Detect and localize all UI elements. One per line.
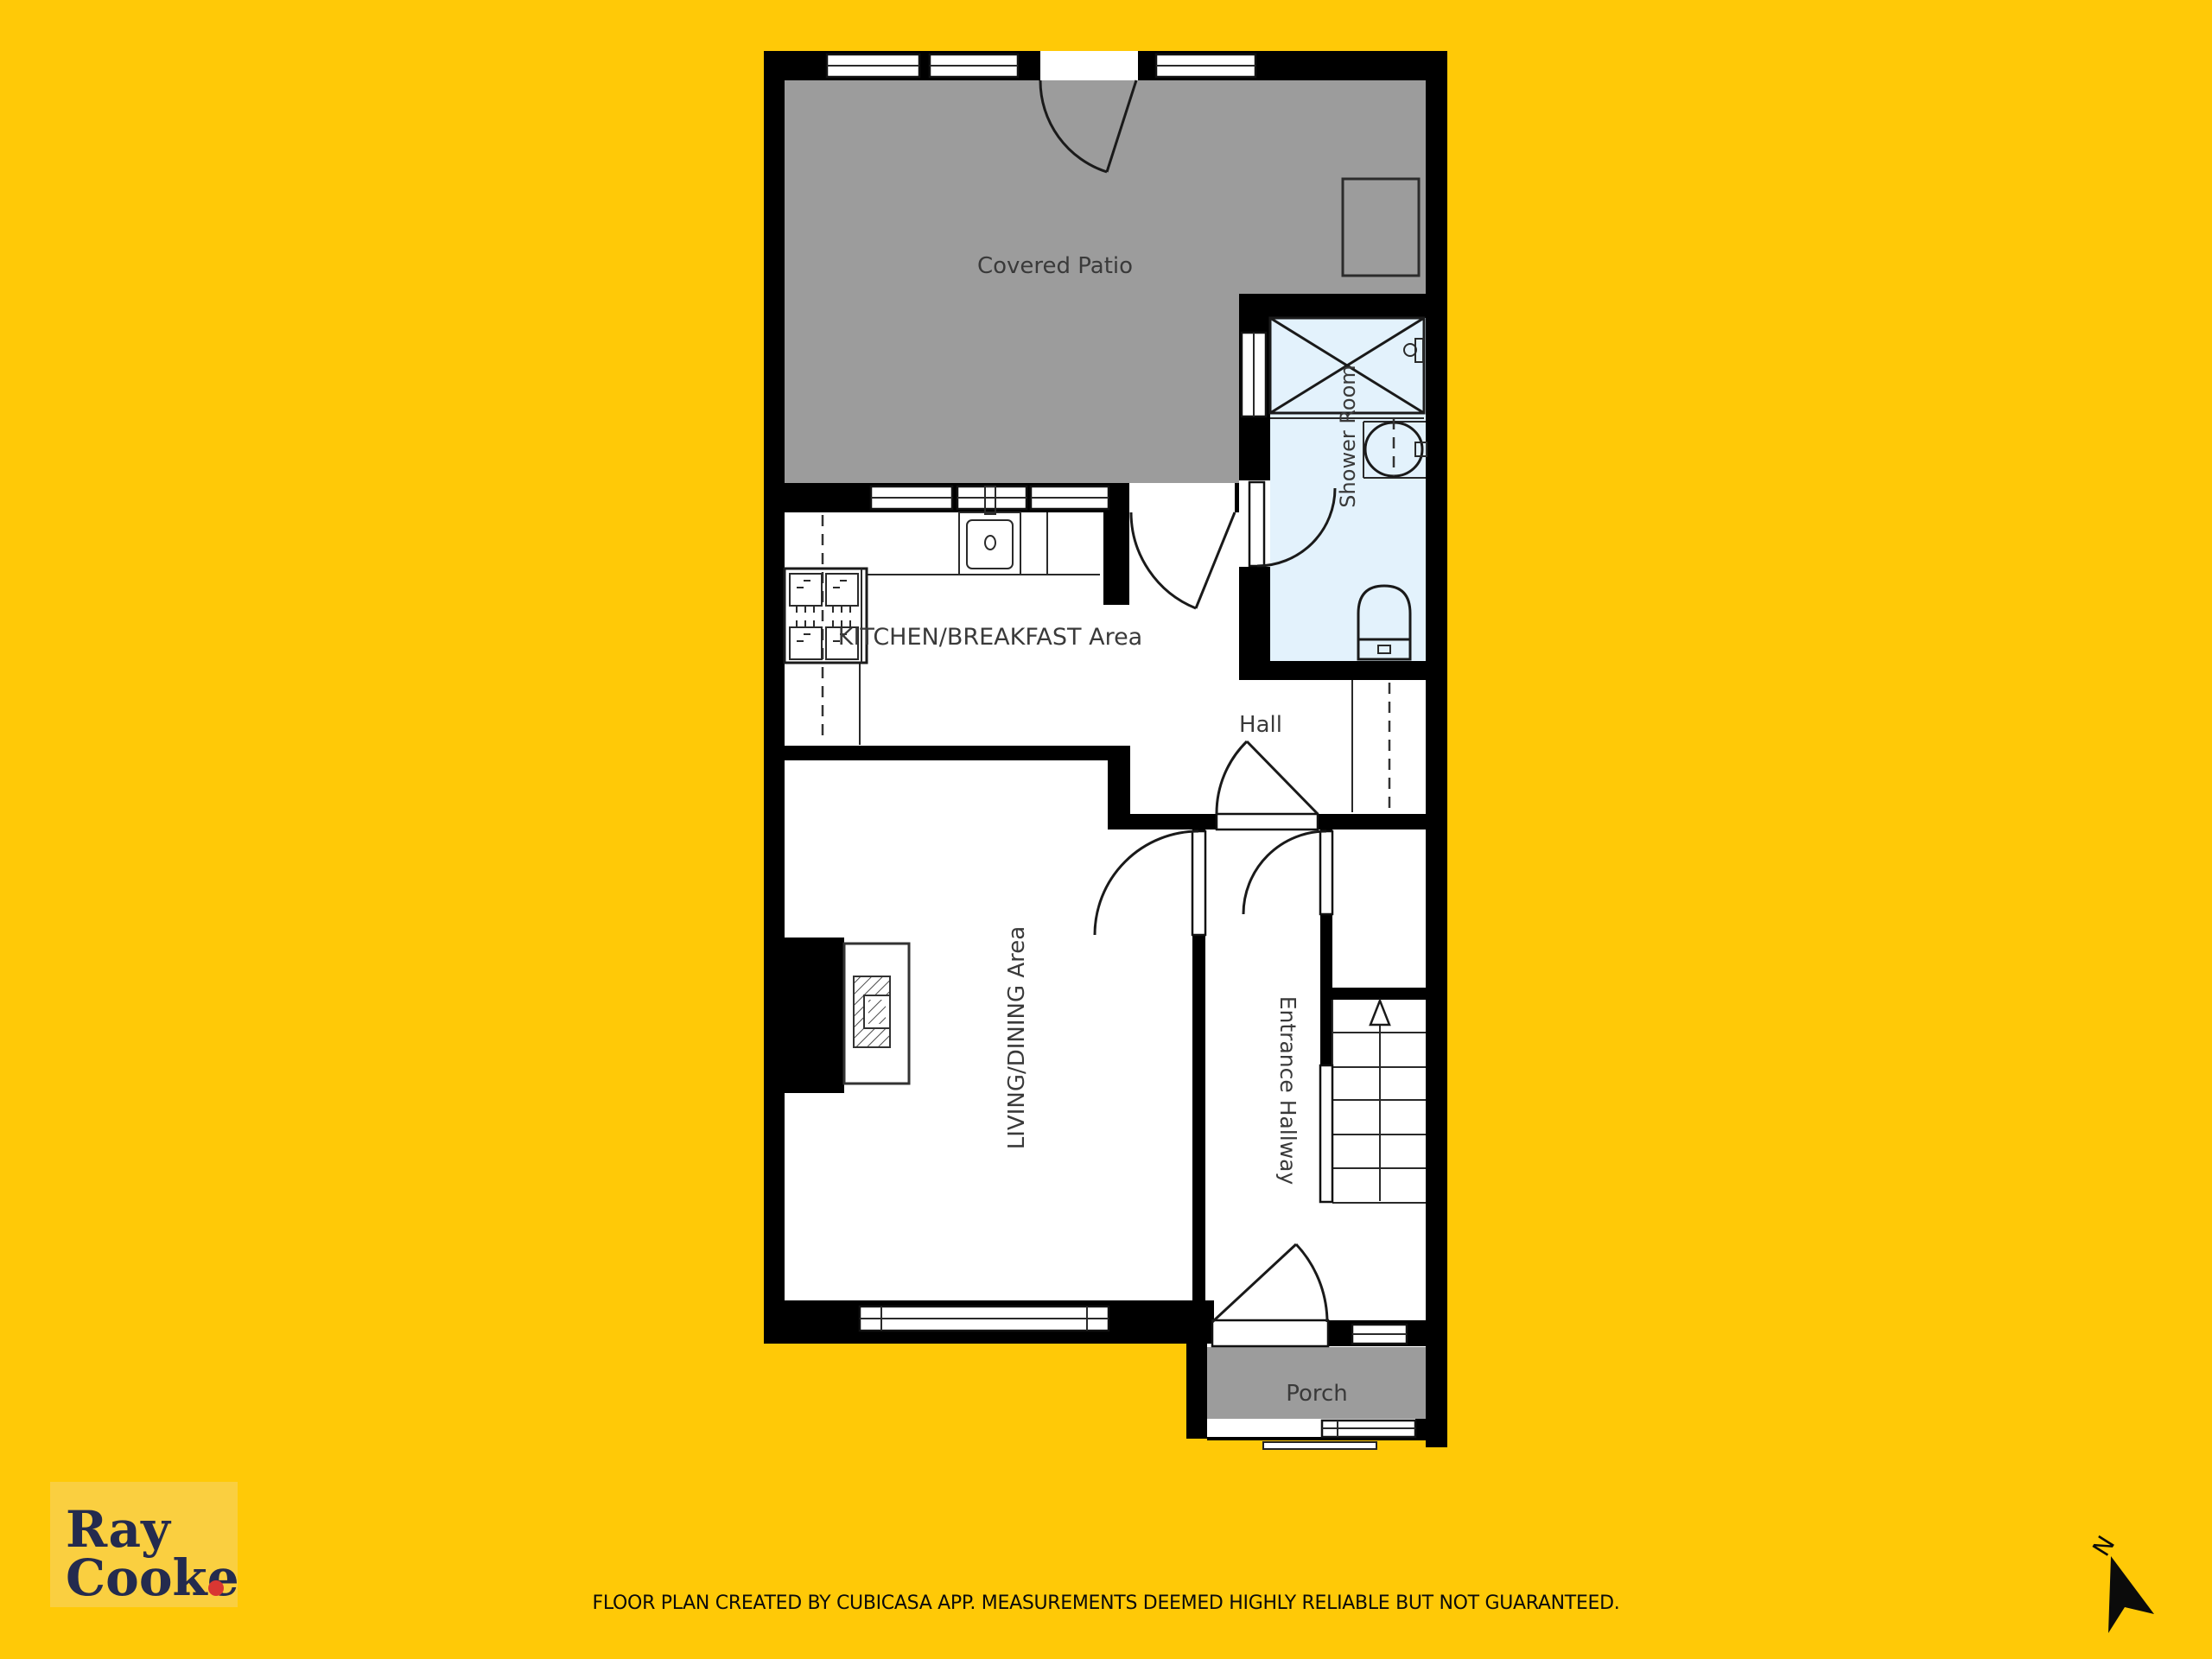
floorplan-page: Covered Patio KITCHEN/BREAKFAST Area Hal… bbox=[0, 0, 2212, 1659]
wall-living-hall bbox=[1128, 814, 1217, 829]
window-kitchen-2 bbox=[957, 486, 1027, 509]
wall-stairs-top bbox=[1320, 988, 1428, 1000]
window-shower-west bbox=[1242, 333, 1266, 416]
porch-entry-step bbox=[1263, 1442, 1376, 1449]
floorplan-canvas: Covered Patio KITCHEN/BREAKFAST Area Hal… bbox=[0, 0, 2212, 1659]
window-entry-south bbox=[1352, 1325, 1407, 1344]
room-label-living-dining: LIVING/DINING Area bbox=[1004, 926, 1030, 1149]
window-porch-front bbox=[1322, 1421, 1415, 1437]
patio-top-door-opening bbox=[1040, 51, 1138, 80]
room-label-entrance-hallway: Entrance Hallway bbox=[1275, 996, 1300, 1185]
wall-kitchen-living bbox=[764, 746, 1130, 760]
wall-hall-stub bbox=[1108, 746, 1130, 829]
wall-right bbox=[1426, 51, 1447, 1447]
patio-kitchen-door-opening bbox=[1131, 483, 1235, 512]
wall-shower-top bbox=[1239, 294, 1447, 318]
room-label-hall: Hall bbox=[1239, 712, 1282, 738]
wall-porch-corner bbox=[1415, 1419, 1427, 1437]
logo-line2: Cooke bbox=[66, 1548, 239, 1607]
brand-logo: Ray Cooke bbox=[50, 1482, 239, 1607]
window-living-south bbox=[860, 1306, 1109, 1331]
wall-left bbox=[764, 51, 785, 1344]
window-top-2 bbox=[930, 54, 1018, 77]
patio-planter bbox=[1343, 179, 1419, 276]
fireplace bbox=[764, 938, 909, 1093]
stairs-banister bbox=[1320, 1065, 1332, 1202]
room-label-kitchen: KITCHEN/BREAKFAST Area bbox=[838, 624, 1142, 651]
window-top-1 bbox=[827, 54, 919, 77]
window-top-3 bbox=[1156, 54, 1255, 77]
disclaimer-text: FLOOR PLAN CREATED BY CUBICASA APP. MEAS… bbox=[593, 1592, 1620, 1614]
logo-period-icon bbox=[208, 1580, 224, 1596]
wall-hall-right bbox=[1318, 814, 1426, 829]
room-label-covered-patio: Covered Patio bbox=[977, 253, 1133, 279]
window-kitchen-3 bbox=[1031, 486, 1109, 509]
room-label-shower-room: Shower Room bbox=[1336, 365, 1360, 507]
wall-porch-left bbox=[1186, 1320, 1207, 1439]
room-label-porch: Porch bbox=[1286, 1381, 1348, 1407]
wall-shower-bottom bbox=[1239, 661, 1447, 680]
porch-step-strip bbox=[1207, 1419, 1322, 1437]
window-kitchen-1 bbox=[871, 486, 952, 509]
